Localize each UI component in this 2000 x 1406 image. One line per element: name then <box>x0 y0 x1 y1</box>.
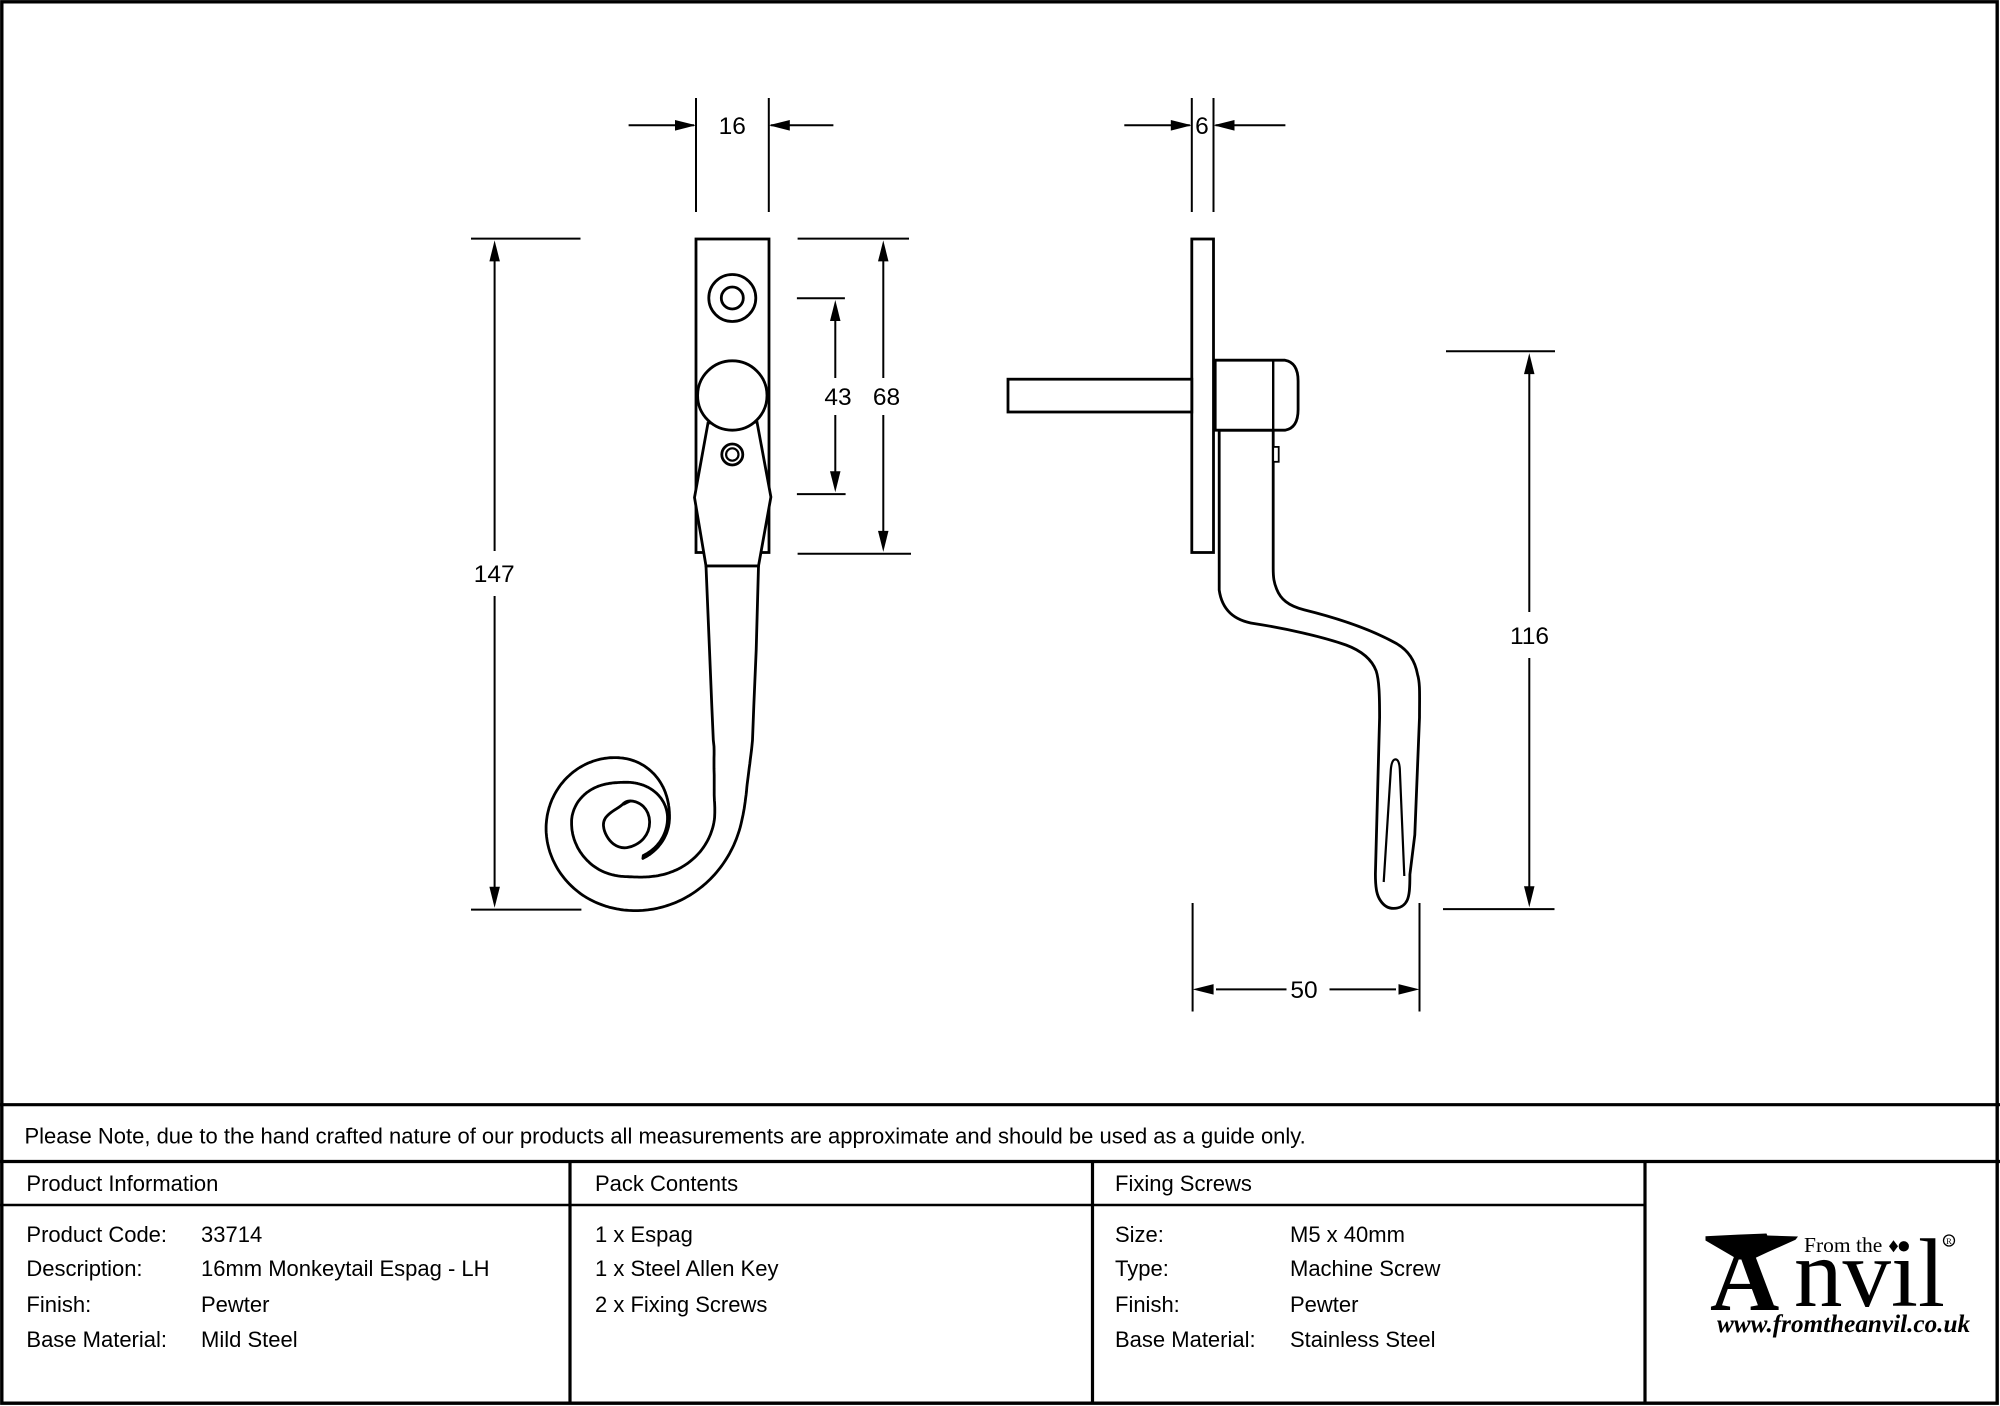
svg-text:Mild Steel: Mild Steel <box>201 1327 298 1352</box>
svg-text:Pack Contents: Pack Contents <box>595 1171 738 1196</box>
svg-text:1 x Steel Allen Key: 1 x Steel Allen Key <box>595 1256 778 1281</box>
svg-text:43: 43 <box>824 384 851 411</box>
svg-text:116: 116 <box>1510 623 1549 650</box>
svg-text:Pewter: Pewter <box>201 1292 269 1317</box>
svg-text:16: 16 <box>719 113 746 140</box>
svg-text:6: 6 <box>1195 113 1209 140</box>
svg-text:R: R <box>1946 1236 1952 1246</box>
svg-text:Description:: Description: <box>26 1256 142 1281</box>
svg-text:Type:: Type: <box>1115 1256 1169 1281</box>
svg-text:Fixing Screws: Fixing Screws <box>1115 1171 1252 1196</box>
svg-text:M5 x 40mm: M5 x 40mm <box>1290 1222 1405 1247</box>
svg-text:www.fromtheanvil.co.uk: www.fromtheanvil.co.uk <box>1717 1311 1970 1338</box>
svg-text:Stainless Steel: Stainless Steel <box>1290 1327 1436 1352</box>
svg-text:68: 68 <box>873 384 900 411</box>
svg-text:Pewter: Pewter <box>1290 1292 1358 1317</box>
svg-text:Size:: Size: <box>1115 1222 1164 1247</box>
svg-text:2 x Fixing Screws: 2 x Fixing Screws <box>595 1292 767 1317</box>
svg-text:Please Note, due to the hand c: Please Note, due to the hand crafted nat… <box>25 1124 1306 1149</box>
svg-text:Finish:: Finish: <box>1115 1292 1180 1317</box>
svg-text:16mm Monkeytail Espag - LH: 16mm Monkeytail Espag - LH <box>201 1256 490 1281</box>
svg-text:50: 50 <box>1290 977 1317 1004</box>
svg-text:Machine Screw: Machine Screw <box>1290 1256 1441 1281</box>
svg-text:Base Material:: Base Material: <box>26 1327 167 1352</box>
svg-text:33714: 33714 <box>201 1222 262 1247</box>
svg-text:1 x Espag: 1 x Espag <box>595 1222 693 1247</box>
svg-text:Product Code:: Product Code: <box>26 1222 167 1247</box>
svg-text:Product Information: Product Information <box>26 1171 218 1196</box>
svg-text:Base Material:: Base Material: <box>1115 1327 1256 1352</box>
svg-text:Finish:: Finish: <box>26 1292 91 1317</box>
svg-text:147: 147 <box>474 561 515 588</box>
